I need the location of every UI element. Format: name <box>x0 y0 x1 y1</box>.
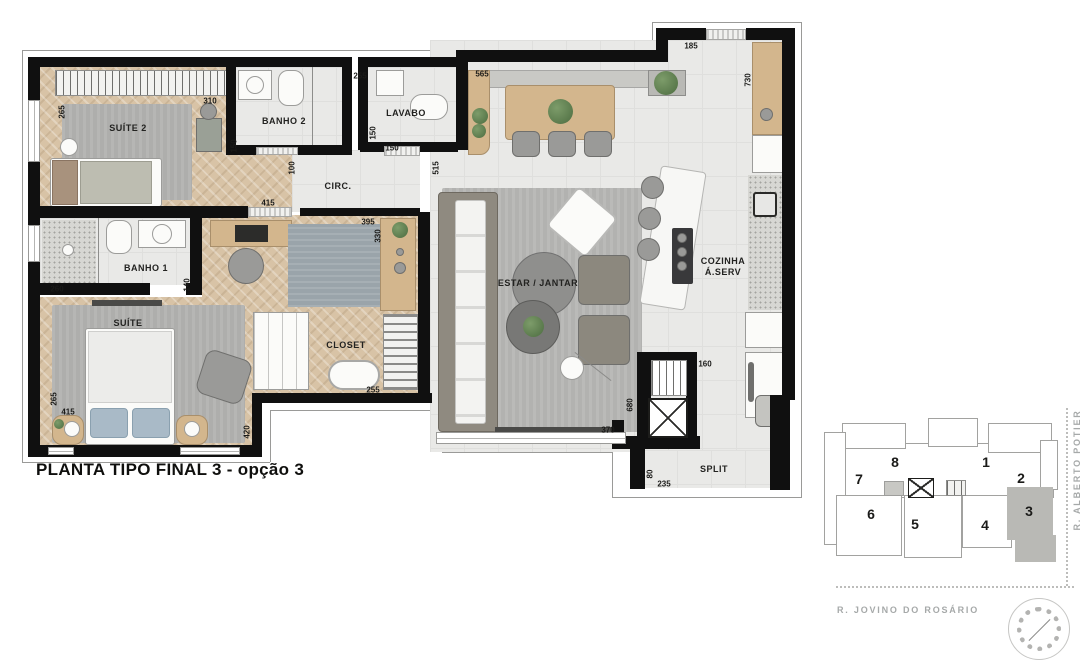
closet-shelving <box>383 314 418 390</box>
stairs <box>651 360 687 396</box>
dim-circ-100: 100 <box>288 161 297 174</box>
circ-floor <box>292 150 420 212</box>
burner <box>677 233 687 243</box>
wall-closet-bottom <box>252 393 432 403</box>
wall-banho2-right <box>342 57 352 155</box>
wall-right <box>782 38 795 400</box>
nightstand-plant <box>54 419 64 429</box>
dim-split-80: 80 <box>646 470 655 479</box>
living-armchair <box>578 255 630 305</box>
service-sink <box>753 192 777 217</box>
suite-window <box>48 447 74 455</box>
plan-outline <box>652 22 802 23</box>
dresser-knob <box>394 262 406 274</box>
banho2-shower-divider <box>312 67 313 147</box>
dim-office-395: 395 <box>361 218 374 227</box>
room-label-banho1: BANHO 1 <box>124 263 168 273</box>
suite2-desk <box>196 118 222 152</box>
room-label-suite: SUÍTE <box>113 318 142 328</box>
office-chair <box>228 248 264 284</box>
keyplan-unit-3: 3 <box>1025 503 1033 519</box>
sideboard-plant <box>472 108 488 124</box>
banho2-basin <box>246 76 264 94</box>
dim-suite2-265: 265 <box>58 105 67 118</box>
lavabo-sink <box>376 70 404 96</box>
burner <box>677 247 687 257</box>
room-label-cozinha: COZINHA <box>701 256 746 266</box>
dim-estar-370: 370 <box>601 426 614 435</box>
living-armchair <box>578 315 630 365</box>
dim-kitchen-730: 730 <box>744 73 753 86</box>
sofa-cushions <box>455 200 486 424</box>
wall-lavabo-top <box>358 57 468 67</box>
room-label-lavabo: LAVABO <box>386 108 426 118</box>
floor-lamp <box>560 356 584 380</box>
suite2-window <box>28 100 40 162</box>
banho2-toilet <box>278 70 304 106</box>
plan-outline <box>442 452 612 453</box>
floorplan-page: SUÍTE 2 BANHO 2 LAVABO CIRC. BANHO 1 SUÍ… <box>0 0 1090 665</box>
kitchen-counter <box>752 42 786 135</box>
room-label-estar: ESTAR / JANTAR <box>498 278 578 288</box>
dining-chair <box>584 131 612 157</box>
room-label-suite2: SUÍTE 2 <box>109 123 147 133</box>
fridge-handle <box>748 362 754 402</box>
dim-buffet-565: 565 <box>475 70 488 79</box>
suite-blanket <box>88 331 172 403</box>
wall-lavabo-right <box>456 57 468 150</box>
split-wall-right <box>770 395 790 490</box>
keyplan-block <box>1040 440 1058 490</box>
plan-outline <box>22 50 23 462</box>
dim-door-185: 185 <box>684 42 697 51</box>
banho1-toilet <box>106 220 132 254</box>
banho1-drain <box>62 244 74 256</box>
dim-suite-265: 265 <box>50 392 59 405</box>
dresser-plant <box>392 222 408 238</box>
keyplan-block <box>842 423 906 449</box>
wall-banho1-right <box>190 206 202 295</box>
street-label-bottom: R. JOVINO DO ROSÁRIO <box>837 605 979 615</box>
dim-split-235: 235 <box>657 480 670 489</box>
plan-outline <box>612 497 802 498</box>
keyplan: 8 1 7 2 6 5 4 3 R. ALBERTO POTIER R. JOV… <box>818 405 1090 665</box>
keyplan-block <box>836 495 902 556</box>
keyplan-unit-1: 1 <box>982 454 990 470</box>
plan-outline <box>612 452 613 497</box>
dim-banho2-150: 150 <box>230 139 239 152</box>
plan-outline <box>270 410 271 462</box>
suite2-headboard <box>52 160 78 205</box>
keyplan-unit-6: 6 <box>867 506 875 522</box>
office-rug <box>288 224 384 307</box>
keyplan-unit3-highlight <box>1015 535 1056 562</box>
room-label-split: SPLIT <box>700 464 728 474</box>
dim-lavabo-150v: 150 <box>369 126 378 139</box>
dim-circ-415: 415 <box>261 199 274 208</box>
wall-top-left <box>28 57 352 67</box>
wall-dining-top <box>456 50 668 62</box>
dining-chair <box>548 131 576 157</box>
banho2-door <box>256 147 298 155</box>
plan-outline <box>801 22 802 497</box>
room-label-aserv: Á.SERV <box>705 267 741 277</box>
banho1-basin <box>152 224 172 244</box>
wall-office-living <box>418 212 430 400</box>
keyplan-stairs <box>946 480 966 496</box>
street-line-right <box>1066 408 1068 586</box>
keyplan-unit-2: 2 <box>1017 470 1025 486</box>
dining-chair <box>512 131 540 157</box>
suite-pillow <box>132 408 170 438</box>
bar-stool <box>638 207 661 230</box>
dim-office-330: 330 <box>374 229 383 242</box>
dim-suite-420: 420 <box>243 425 252 438</box>
nightstand-lamp <box>184 421 200 437</box>
street-line-bottom <box>836 586 1074 588</box>
burner <box>677 261 687 271</box>
banho1-divider <box>98 218 99 284</box>
dim-lavabo-150h: 150 <box>385 144 398 153</box>
plan-outline <box>22 50 462 51</box>
page-title: PLANTA TIPO FINAL 3 - opção 3 <box>36 460 304 480</box>
dim-suite-415: 415 <box>61 408 74 417</box>
dim-closet-255: 255 <box>366 386 379 395</box>
dim-banho1-140: 140 <box>183 278 192 291</box>
dim-dining-515: 515 <box>432 161 441 174</box>
coffee-table-plant <box>523 316 544 337</box>
office-laptop <box>235 225 268 242</box>
wall-mid <box>28 206 248 218</box>
keyplan-unit-8: 8 <box>891 454 899 470</box>
wall-circ-office <box>300 208 420 216</box>
wall-banho1-bottom <box>28 283 150 295</box>
living-window <box>436 432 626 444</box>
elevator-shaft <box>648 398 688 438</box>
service-door <box>706 29 746 40</box>
bar-stool <box>641 176 664 199</box>
keyplan-unit-4: 4 <box>981 517 989 533</box>
table-centerpiece <box>548 99 573 124</box>
suite-pillow <box>90 408 128 438</box>
room-label-circ: CIRC. <box>325 181 352 191</box>
suite2-wardrobe <box>55 70 228 96</box>
kitchen-cabinet <box>752 135 786 173</box>
plan-outline <box>270 410 442 411</box>
street-label-right: R. ALBERTO POTIER <box>1072 409 1082 530</box>
split-wall <box>630 449 645 489</box>
dim-suite2-310: 310 <box>203 97 216 106</box>
counter-item <box>760 108 773 121</box>
nightstand-lamp <box>64 421 80 437</box>
keyplan-unit-7: 7 <box>855 471 863 487</box>
suite2-mattress <box>80 161 152 204</box>
compass <box>1008 598 1070 660</box>
suite2-door <box>248 207 292 217</box>
dim-banho1-260: 260 <box>50 285 63 294</box>
keyplan-unit-5: 5 <box>911 516 919 532</box>
dim-banho2-255: 255 <box>353 72 366 81</box>
closet-wardrobe <box>253 312 309 390</box>
keyplan-core <box>884 481 904 496</box>
dresser-knob <box>396 248 404 256</box>
room-label-banho2: BANHO 2 <box>262 116 306 126</box>
dim-estar-680: 680 <box>626 398 635 411</box>
suite2-lamp <box>60 138 78 156</box>
suite-window <box>180 447 240 455</box>
suite2-desk-chair <box>200 103 217 120</box>
suite-tv <box>92 300 162 306</box>
sideboard-plant <box>472 124 486 138</box>
planter-plant <box>654 71 678 95</box>
dim-hall-160: 160 <box>698 360 711 369</box>
bar-stool <box>637 238 660 261</box>
wall-top-right <box>664 28 706 40</box>
room-label-closet: CLOSET <box>326 340 366 350</box>
keyplan-elevator <box>908 478 934 498</box>
washer <box>745 312 786 348</box>
keyplan-block <box>928 418 978 447</box>
banho1-window <box>28 225 40 262</box>
